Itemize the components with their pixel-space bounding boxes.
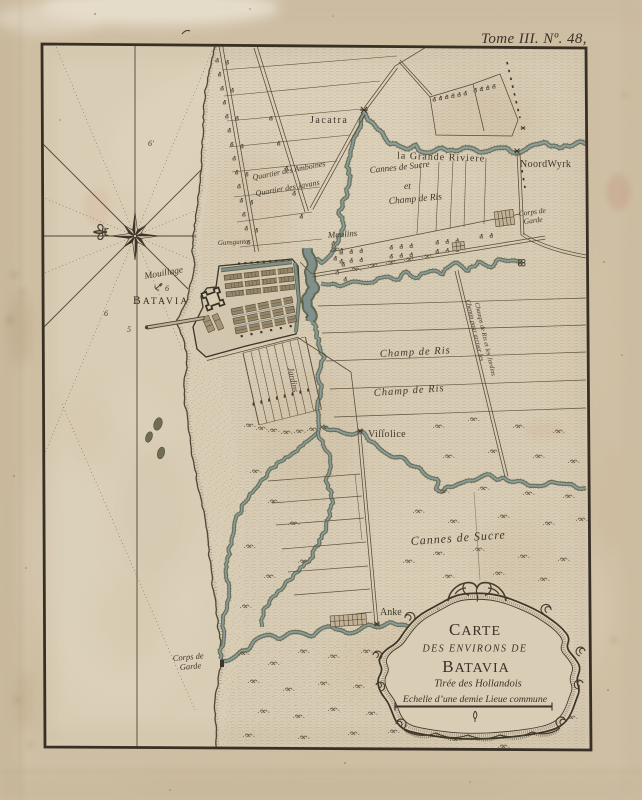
svg-text:BATAVIA: BATAVIA bbox=[133, 295, 189, 307]
svg-text:NoordWyrk: NoordWyrk bbox=[520, 159, 571, 170]
svg-text:Echelle d’une demie Lieue comm: Echelle d’une demie Lieue commune bbox=[402, 694, 548, 705]
svg-text:6: 6 bbox=[104, 309, 108, 318]
svg-text:Tome III. Nº. 48,: Tome III. Nº. 48, bbox=[481, 31, 587, 47]
svg-text:et: et bbox=[404, 182, 411, 192]
svg-text:6: 6 bbox=[165, 284, 169, 293]
svg-text:DES ENVIRONS DE: DES ENVIRONS DE bbox=[422, 644, 528, 655]
svg-text:6′: 6′ bbox=[148, 139, 154, 148]
svg-text:5: 5 bbox=[127, 325, 131, 334]
svg-text:Gunsgunte: Gunsgunte bbox=[218, 237, 249, 247]
svg-text:Garde: Garde bbox=[179, 660, 201, 672]
svg-text:Tirée des Hollandois: Tirée des Hollandois bbox=[434, 679, 522, 690]
svg-text:Jacatra: Jacatra bbox=[310, 115, 348, 126]
svg-text:Viſſolice: Viſſolice bbox=[368, 429, 406, 440]
svg-text:Anke: Anke bbox=[380, 607, 402, 618]
